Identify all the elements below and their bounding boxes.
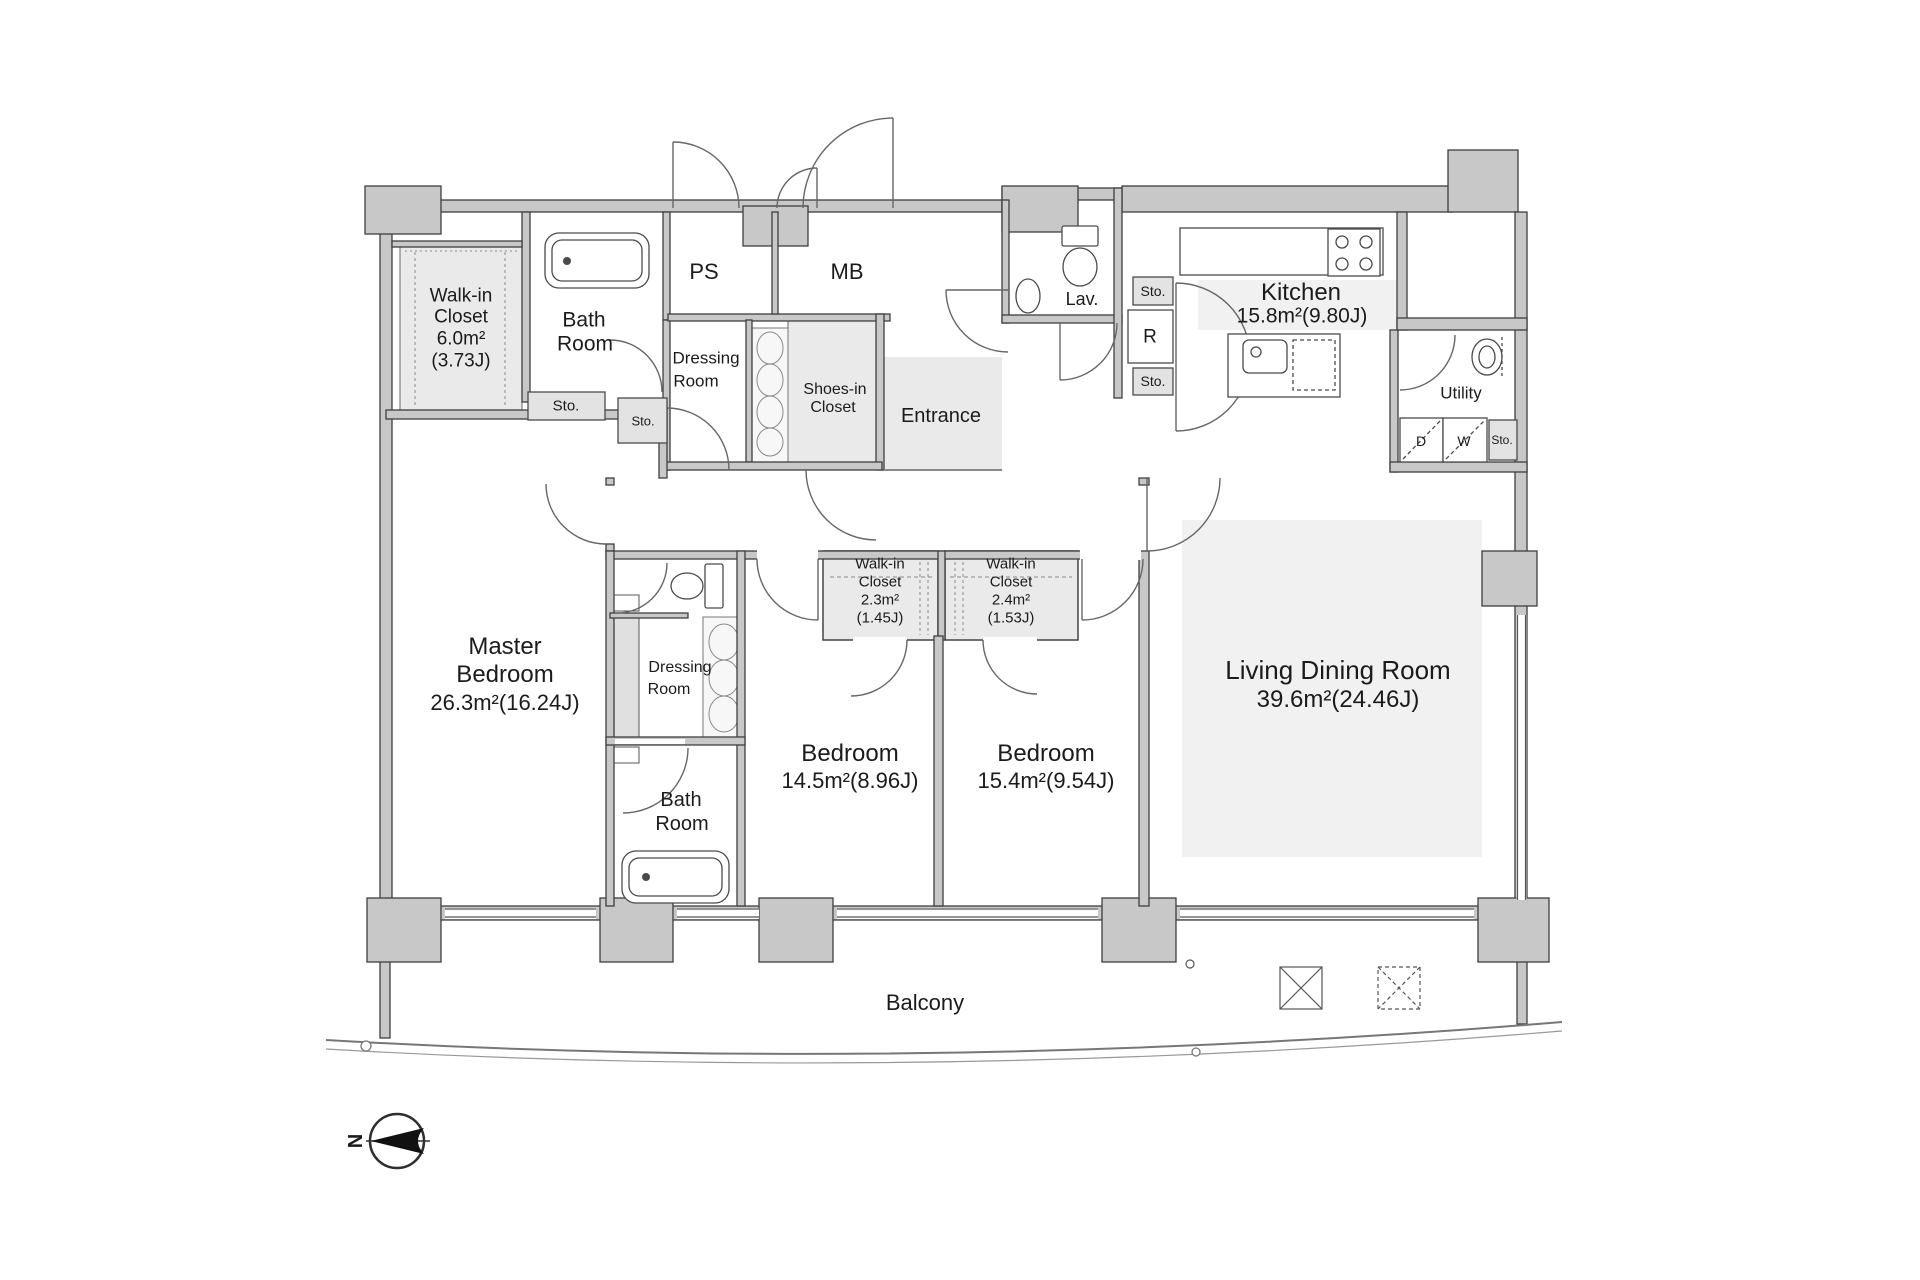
storage-label-a: Sto. — [553, 399, 580, 414]
entrance-label: Entrance — [901, 406, 981, 426]
bath-room-mid-label: Bath — [660, 790, 701, 810]
toilet-icon — [1062, 226, 1098, 286]
shoes-in-closet-label: Shoes-in — [803, 382, 866, 398]
master-bedroom-label: Master — [468, 635, 541, 659]
master-bedroom-label2: Bedroom — [456, 663, 553, 687]
meter-box-label: MB — [831, 261, 864, 283]
walk-in-closet-2-label2: Closet — [859, 575, 902, 590]
walk-in-closet-3-area: 2.4m² — [992, 593, 1030, 608]
bath-room-main-label2: Room — [557, 334, 613, 355]
living-dining-label: Living Dining Room — [1225, 657, 1450, 683]
walk-in-closet-main-tatami: (3.73J) — [431, 352, 490, 371]
bedroom-2-label: Bedroom — [997, 742, 1094, 766]
walk-in-closet-main-label: Walk-in — [430, 287, 493, 306]
kitchen-area: 15.8m²(9.80J) — [1237, 306, 1368, 327]
bath-room-main-label: Bath — [562, 310, 605, 331]
bathtub-icon — [545, 233, 649, 288]
shoes-in-closet-label2: Closet — [810, 400, 855, 416]
dressing-room-top-label: Dressing — [672, 350, 739, 367]
dressing-room-mid-label2: Room — [648, 682, 691, 698]
kitchen-label: Kitchen — [1261, 281, 1341, 305]
bedroom-1-label: Bedroom — [801, 742, 898, 766]
storage-label-d: Sto. — [1141, 374, 1166, 388]
bedroom-1-area: 14.5m²(8.96J) — [782, 770, 919, 792]
pipe-space-label: PS — [689, 261, 718, 283]
walk-in-closet-main-label2: Closet — [434, 308, 488, 327]
walk-in-closet-3-label: Walk-in — [986, 557, 1035, 572]
balcony-details — [1186, 960, 1420, 1009]
walk-in-closet-2-area: 2.3m² — [861, 593, 899, 608]
stove-icon — [1328, 229, 1380, 276]
utility-label: Utility — [1440, 385, 1482, 402]
storage-label-b: Sto. — [631, 415, 654, 428]
refrigerator-label: R — [1143, 328, 1157, 347]
bedroom-2-area: 15.4m²(9.54J) — [978, 770, 1115, 792]
compass-north-label: N — [346, 1134, 366, 1148]
washbasin-icon — [1016, 279, 1040, 313]
bathtub-2-icon — [622, 851, 729, 903]
toilet-2-icon — [671, 564, 723, 608]
master-bedroom-area: 26.3m²(16.24J) — [430, 692, 579, 714]
dressing-room-top-label2: Room — [673, 373, 718, 390]
walk-in-closet-main-area: 6.0m² — [437, 330, 486, 349]
dressing-room-mid-label: Dressing — [648, 660, 711, 676]
balcony-railing — [326, 1022, 1562, 1063]
walk-in-closet-2-label: Walk-in — [855, 557, 904, 572]
walk-in-closet-3-label2: Closet — [990, 575, 1033, 590]
storage-label-e: Sto. — [1491, 434, 1512, 446]
kitchen-island-icon — [1228, 334, 1340, 397]
floor-plan: Walk-in Closet 6.0m² (3.73J) Bath Room S… — [0, 0, 1920, 1280]
floor-plan-drawing — [0, 0, 1920, 1280]
balcony-label: Balcony — [886, 992, 964, 1014]
lavatory-label: Lav. — [1066, 290, 1099, 308]
walk-in-closet-3-tatami: (1.53J) — [988, 611, 1035, 626]
storage-label-c: Sto. — [1141, 284, 1166, 298]
living-dining-area: 39.6m²(24.46J) — [1257, 688, 1420, 712]
bath-room-mid-label2: Room — [655, 814, 708, 834]
dryer-label: D — [1416, 434, 1426, 448]
washer-label: W — [1457, 434, 1470, 448]
compass-icon — [366, 1114, 430, 1168]
walk-in-closet-2-tatami: (1.45J) — [857, 611, 904, 626]
utility-sink-icon — [1472, 337, 1502, 377]
